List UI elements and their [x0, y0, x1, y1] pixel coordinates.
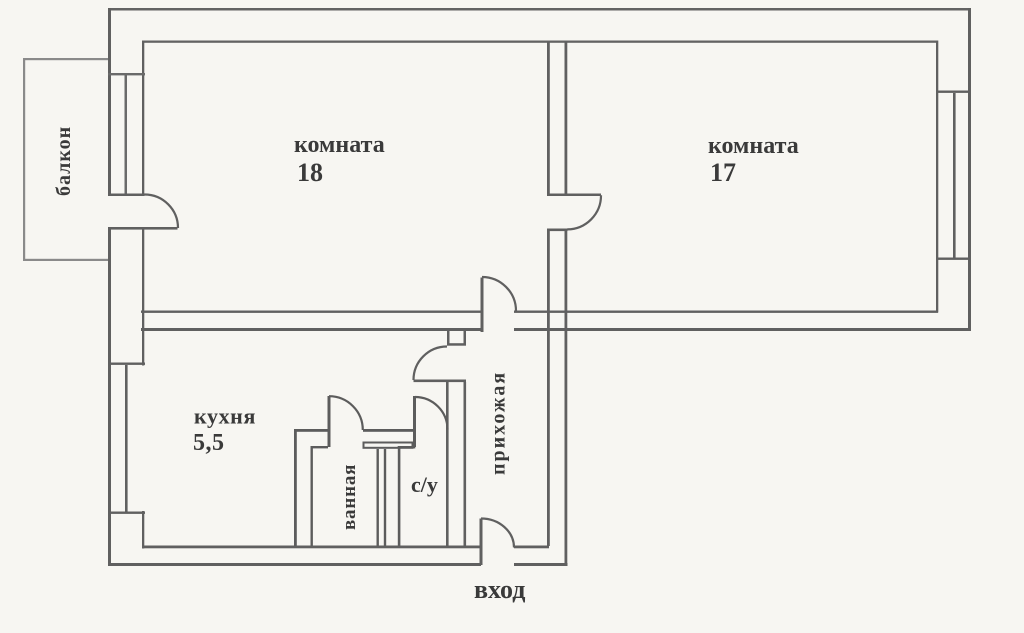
svg-text:17: 17	[710, 158, 736, 187]
svg-text:18: 18	[297, 158, 323, 187]
svg-text:прихожая: прихожая	[488, 371, 510, 475]
svg-text:с/у: с/у	[411, 472, 438, 497]
svg-text:кухня: кухня	[194, 404, 256, 429]
svg-text:ванная: ванная	[339, 464, 360, 530]
svg-text:5,5: 5,5	[193, 430, 225, 456]
svg-text:комната: комната	[708, 133, 799, 159]
svg-text:комната: комната	[294, 132, 385, 158]
svg-text:вход: вход	[474, 575, 525, 604]
svg-text:балкон: балкон	[53, 126, 75, 196]
